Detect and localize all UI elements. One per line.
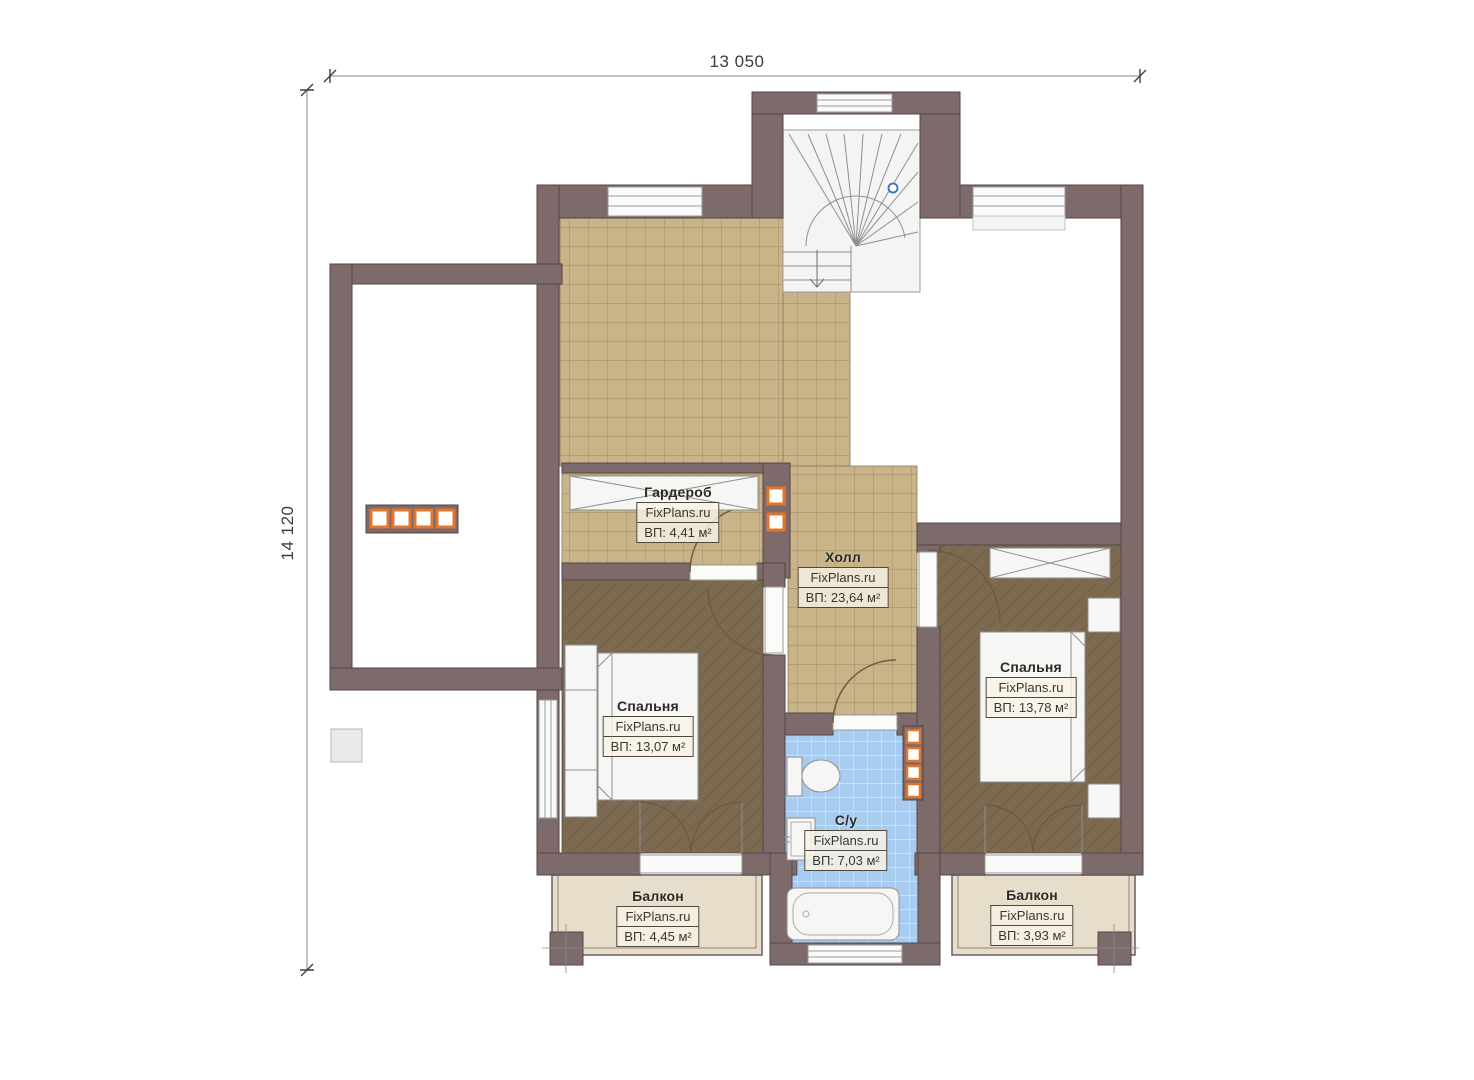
- room-name-balcony-left: Балкон: [616, 888, 699, 904]
- room-name-bedroom-left: Спальня: [603, 698, 694, 714]
- floor-plan-drawing: [0, 0, 1474, 1080]
- room-info-box: FixPlans.ru ВП: 4,41 м²: [636, 502, 719, 543]
- column-marker-square: [331, 729, 362, 762]
- watermark-fixplans: FixPlans.ru: [805, 831, 886, 850]
- wall-bathroom-top-a: [785, 713, 833, 735]
- room-label-bathroom: С/у FixPlans.ru ВП: 7,03 м²: [804, 812, 887, 871]
- stair-section-marker: [889, 184, 898, 193]
- bedroom-right-cabinet: [990, 548, 1110, 578]
- watermark-fixplans: FixPlans.ru: [987, 678, 1076, 697]
- wall-bottom-4: [1082, 853, 1143, 875]
- wall-wing-bottom: [330, 668, 562, 690]
- room-area-hall: ВП: 23,64 м²: [799, 587, 888, 607]
- dimension-width-label: 13 050: [710, 52, 765, 72]
- room-info-box: FixPlans.ru ВП: 13,78 м²: [986, 677, 1077, 718]
- room-name-balcony-right: Балкон: [990, 887, 1073, 903]
- room-label-balcony-left: Балкон FixPlans.ru ВП: 4,45 м²: [616, 888, 699, 947]
- dimension-height-label: 14 120: [278, 506, 298, 561]
- window-top-right: [973, 187, 1065, 230]
- room-label-hall: Холл FixPlans.ru ВП: 23,64 м²: [798, 549, 889, 608]
- watermark-fixplans: FixPlans.ru: [991, 906, 1072, 925]
- room-area-balcony-right: ВП: 3,93 м²: [991, 925, 1072, 945]
- wall-wardrobe-top: [562, 463, 790, 473]
- room-area-balcony-left: ВП: 4,45 м²: [617, 926, 698, 946]
- radiator-bathroom: [903, 726, 923, 800]
- room-name-bedroom-right: Спальня: [986, 659, 1077, 675]
- wall-bedroomright-top: [917, 523, 1121, 545]
- watermark-fixplans: FixPlans.ru: [617, 907, 698, 926]
- bathtub: [787, 888, 899, 940]
- watermark-fixplans: FixPlans.ru: [799, 568, 888, 587]
- room-area-bathroom: ВП: 7,03 м²: [805, 850, 886, 870]
- room-area-bedroom-left: ВП: 13,07 м²: [604, 736, 693, 756]
- bedroom-left-closet: [565, 645, 597, 817]
- room-info-box: FixPlans.ru ВП: 23,64 м²: [798, 567, 889, 608]
- wall-bottom-1: [537, 853, 640, 875]
- room-area-wardrobe: ВП: 4,41 м²: [637, 522, 718, 542]
- wall-wing-left: [330, 264, 352, 690]
- nightstand-top: [1088, 598, 1120, 632]
- floor-plan-canvas: 13 050 14 120 Гардероб FixPlans.ru ВП: 4…: [0, 0, 1474, 1080]
- room-info-box: FixPlans.ru ВП: 13,07 м²: [603, 716, 694, 757]
- wall-corridor-left-b: [763, 655, 785, 853]
- room-info-box: FixPlans.ru ВП: 7,03 м²: [804, 830, 887, 871]
- hall-floor-under-stairs: [783, 292, 850, 466]
- room-info-box: FixPlans.ru ВП: 3,93 м²: [990, 905, 1073, 946]
- window-bathroom-bottom: [808, 945, 902, 963]
- watermark-fixplans: FixPlans.ru: [637, 503, 718, 522]
- window-left-wall: [539, 700, 557, 818]
- radiator-wing: [366, 505, 458, 533]
- wall-wing-top: [330, 264, 562, 284]
- window-stairwell: [817, 94, 892, 112]
- wall-corridor-left-a: [763, 563, 785, 587]
- room-info-box: FixPlans.ru ВП: 4,45 м²: [616, 906, 699, 947]
- watermark-fixplans: FixPlans.ru: [604, 717, 693, 736]
- hall-floor-upper: [560, 216, 785, 466]
- room-label-balcony-right: Балкон FixPlans.ru ВП: 3,93 м²: [990, 887, 1073, 946]
- room-label-wardrobe: Гардероб FixPlans.ru ВП: 4,41 м²: [636, 484, 719, 543]
- staircase: [783, 130, 920, 292]
- balcony-right-pillar: [1098, 932, 1131, 965]
- room-name-hall: Холл: [798, 549, 889, 565]
- wall-bedroomleft-top-a: [562, 563, 690, 580]
- room-label-bedroom-left: Спальня FixPlans.ru ВП: 13,07 м²: [603, 698, 694, 757]
- window-top-left: [608, 187, 702, 216]
- room-name-wardrobe: Гардероб: [636, 484, 719, 500]
- room-name-bathroom: С/у: [804, 812, 887, 828]
- balcony-left-pillar: [550, 932, 583, 965]
- nightstand-bottom: [1088, 784, 1120, 818]
- wall-right: [1121, 185, 1143, 875]
- room-label-bedroom-right: Спальня FixPlans.ru ВП: 13,78 м²: [986, 659, 1077, 718]
- room-area-bedroom-right: ВП: 13,78 м²: [987, 697, 1076, 717]
